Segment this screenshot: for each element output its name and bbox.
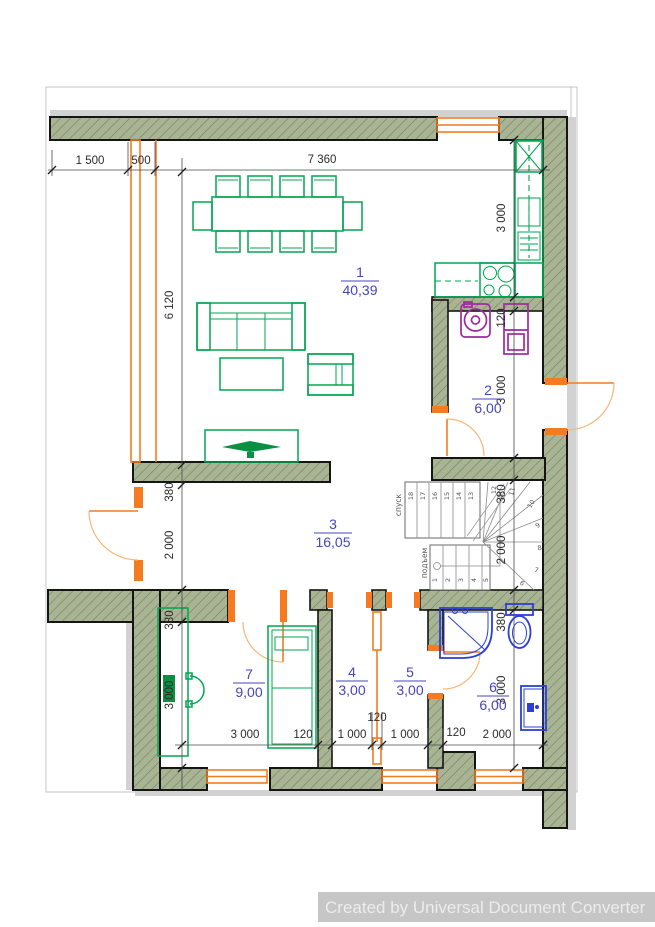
- wall-hall-bottom-b: [372, 590, 386, 610]
- kitchen-counter: [435, 140, 543, 297]
- step-number: 7: [533, 566, 539, 575]
- window-bottom-3: [475, 770, 523, 783]
- room-label-3: 3 16,05: [314, 516, 352, 550]
- dim-top-2: 7 360: [308, 154, 337, 166]
- room-area: 40,39: [342, 282, 377, 298]
- room-number: 4: [348, 664, 356, 680]
- dim-bottom-1: 120: [293, 729, 312, 741]
- wall-bottom-2: [270, 768, 382, 790]
- step-number: 9: [534, 521, 542, 530]
- step-number: 3: [457, 578, 465, 582]
- wall-room7-room4: [318, 610, 332, 768]
- dim-left-0: 6 120: [164, 291, 176, 320]
- armchair: [308, 354, 353, 395]
- corner-shower: [440, 608, 492, 658]
- wall-right-upper: [543, 117, 567, 383]
- step-number: 8: [537, 544, 542, 553]
- stairs: 18 17 16 15 14 13 1 2 3 4 5 12 11 10 9 8…: [394, 482, 543, 590]
- stove: [480, 263, 515, 297]
- step-number: 4: [470, 578, 478, 582]
- room-area: 16,05: [315, 534, 350, 550]
- dim-bottom-5: 120: [446, 727, 465, 739]
- room-number: 6: [489, 679, 497, 695]
- sofa: [197, 303, 305, 350]
- dim-bottom-2: 1 000: [338, 729, 367, 741]
- window-bottom-2: [382, 770, 437, 783]
- stairs-up-label: подъем: [420, 548, 429, 578]
- wall-hall-bottom-c: [420, 590, 543, 610]
- dim-right-0: 3 000: [496, 204, 508, 233]
- window-bottom-1: [207, 770, 267, 783]
- stairs-upper-flight: [405, 482, 480, 538]
- step-number: 1: [431, 578, 439, 582]
- step-number: 18: [407, 492, 415, 500]
- bathroom-door: [428, 645, 480, 699]
- room-label-4: 4 3,00: [336, 664, 368, 698]
- glazed-wall-left: [131, 140, 156, 462]
- wall-bottom-4: [523, 768, 567, 790]
- step-number: 5: [482, 578, 490, 582]
- room-number: 1: [356, 264, 364, 280]
- room-area: 6,00: [474, 400, 501, 416]
- step-number: 10: [526, 498, 537, 509]
- floor-plan-drawing: 18 17 16 15 14 13 1 2 3 4 5 12 11 10 9 8…: [0, 0, 655, 927]
- room-area: 6,00: [479, 697, 506, 713]
- wall-hall-bottom-a: [310, 590, 327, 610]
- step-number: 15: [443, 492, 451, 500]
- step-number: 11: [507, 486, 517, 496]
- tv-stand: [205, 430, 298, 462]
- room-area: 9,00: [235, 684, 262, 700]
- step-number: 14: [455, 492, 463, 500]
- dim-right-4: 2 000: [496, 536, 508, 565]
- dim-left-2: 2 000: [164, 531, 176, 560]
- wall-top-left: [50, 117, 437, 140]
- room-label-5: 5 3,00: [394, 664, 426, 698]
- wall-left-lower: [133, 590, 160, 790]
- room-label-1: 1 40,39: [341, 264, 379, 298]
- floor-plan-page: 18 17 16 15 14 13 1 2 3 4 5 12 11 10 9 8…: [0, 0, 655, 927]
- watermark-text: Created by Universal Document Converter: [325, 898, 646, 917]
- room-area: 3,00: [396, 682, 423, 698]
- dining-table: [193, 176, 362, 252]
- wall-utility-left: [432, 300, 448, 412]
- terrace-door: [89, 487, 143, 581]
- closet-partition: [373, 612, 381, 764]
- walls: [48, 117, 567, 828]
- dim-right-5: 380: [496, 612, 508, 631]
- wall-stairs-top: [432, 458, 545, 480]
- dim-bottom-6: 2 000: [483, 729, 512, 741]
- room-area: 3,00: [338, 682, 365, 698]
- dim-top-0: 1 500: [76, 155, 105, 167]
- dim-left-4: 3 000: [164, 681, 176, 710]
- step-number: 17: [419, 492, 427, 500]
- dim-bottom-0: 3 000: [231, 729, 260, 741]
- step-number: 6: [518, 579, 526, 588]
- dim-top-1: 500: [131, 155, 150, 167]
- step-number: 16: [431, 492, 439, 500]
- room5-door-jambs: [386, 592, 420, 608]
- room-number: 7: [245, 666, 253, 682]
- room-number: 2: [484, 382, 492, 398]
- room-number: 5: [406, 664, 414, 680]
- stairs-lower-flight: [430, 545, 490, 590]
- dim-bottom-4: 1 000: [391, 729, 420, 741]
- watermark: Created by Universal Document Converter: [318, 892, 655, 922]
- dim-bottom-3: 120: [367, 712, 386, 724]
- stairs-down-label: спуск: [394, 493, 403, 516]
- step-number: 2: [444, 578, 452, 582]
- room4-door-jambs: [327, 592, 372, 608]
- dim-left-3: 380: [164, 610, 176, 629]
- coffee-table: [220, 358, 283, 390]
- room-number: 3: [329, 516, 337, 532]
- step-number: 13: [467, 492, 475, 500]
- room-label-7: 7 9,00: [233, 666, 265, 700]
- dim-right-3: 380: [496, 484, 508, 503]
- wall-tv-partition: [133, 462, 330, 482]
- dim-right-1: 120: [496, 308, 508, 327]
- dim-left-1: 380: [164, 482, 176, 501]
- wall-bath-left-lower: [428, 695, 443, 768]
- window-top: [437, 118, 499, 132]
- entrance-door: [545, 378, 614, 435]
